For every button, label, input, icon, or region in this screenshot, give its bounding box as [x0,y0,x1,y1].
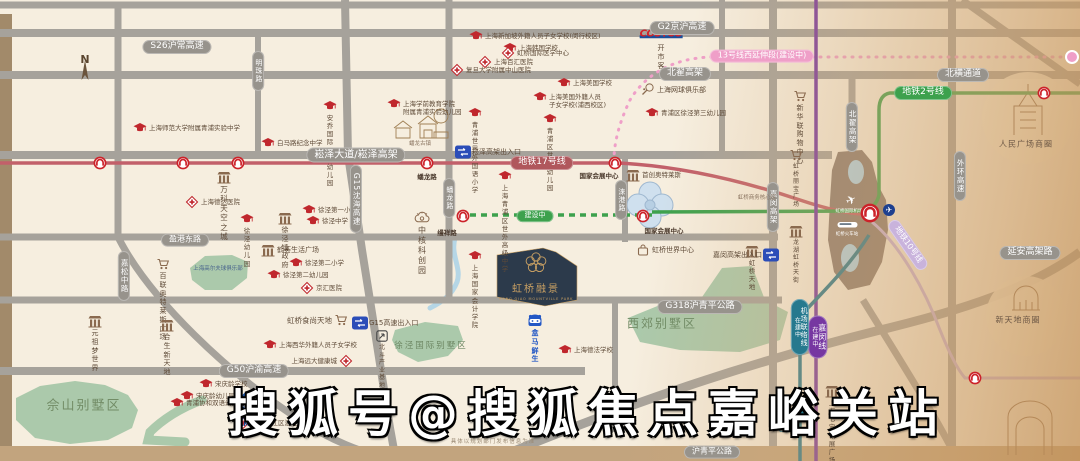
poi-label: 虹桥国际医学中心 [517,49,569,57]
poi-label: 上海国家会计学院 [472,264,479,329]
svg-text:✈: ✈ [886,206,893,215]
metro-station-label: 缦祥路 [437,227,457,237]
poi-label: 上海美国学校 [573,79,612,87]
metro-line-pill: 机场联络线在建中 [791,299,809,355]
metro-station-icon [861,204,880,223]
poi-label: 京汇医院 [316,284,342,292]
plum-blossom-icon [524,251,548,275]
metro-line-pill: 地铁17号线 [510,156,573,170]
poi-label: 白马路纪念中学 [277,139,323,147]
road-pill: G15沈海高速 [350,165,362,233]
metro-station-icon [421,157,434,170]
cart-icon [794,90,807,102]
school-icon [559,345,572,355]
poi-label: 上海新加坡外籍人员子女学校(闵行校区) [485,32,601,40]
poi-label: 上海远大健康城 [292,357,338,365]
line13-terminus-icon [1065,50,1079,64]
school-icon [470,31,483,41]
pill-subtext: 在建中 [793,307,800,347]
school-icon [324,101,337,111]
poi-label: 上海德法学校 [574,346,613,354]
poi-label: 虹桥食尚天地 [287,316,332,325]
school-icon [268,270,281,280]
poi-label: 万科天空之城 [220,185,228,241]
metro-station-icon [457,210,470,223]
metro-station-icon [177,157,190,170]
building-icon [160,319,175,332]
school-icon [303,205,316,215]
road-pill: G2京沪高速 [650,21,715,35]
road-pill: 外环高速 [954,151,966,201]
exit-icon [352,317,368,330]
cart-icon [790,149,803,161]
poi-label: 虹桥世界中心 [652,246,694,255]
school-icon [469,108,482,118]
poi-label: G15高速出入口 [369,319,418,328]
area-label: 虹桥商务核心区 [738,193,777,201]
area-label: 虹桥国际机场 [836,208,863,214]
road-pill: 明珠路 [252,51,264,91]
bag-icon [638,244,649,256]
train-white-icon [837,221,859,229]
poi-label: 徐泾第二幼儿园 [283,271,329,279]
school-icon [200,379,213,389]
svg-text:✈: ✈ [843,193,858,207]
poi-label: 上海百汇医院 [494,58,533,66]
school-icon [646,108,659,118]
location-map: N上海师范大学附属青浦实验中学安乔国际双语幼儿园白马路纪念中学上海新加坡外籍人员… [0,0,1080,461]
area-label: 蟠龙古镇 [409,139,431,147]
road-pill: 涞港路 [615,180,627,220]
poi-label: 虹桥天地 [749,259,756,292]
building-icon [261,244,276,257]
road-pill: 蟠龙路 [443,178,455,218]
metro-line-pill: 13号线西延伸段(建设中) [710,50,814,63]
poi-label: 上海师范大学附属青浦实验中学 [149,124,240,132]
metro-station-label: 蟠龙路 [417,171,437,181]
road-pill: 北横通道 [937,68,989,82]
area-label: 新天地商圈 [996,315,1041,326]
school-icon [388,99,401,109]
cart-icon [157,258,170,270]
road-pill: 嘉闵高架 [767,182,779,232]
hema-icon [527,314,544,328]
project-logo: 虹桥融景 HONG QIAO MOUNTVILLE PARK [492,251,580,307]
beidou-icon [376,330,388,342]
poi-label: 青浦世界外国语小学 [472,121,479,194]
tennis-icon [641,83,655,97]
hospital-icon [186,196,199,209]
plane-circle-icon: ✈ [883,204,896,217]
road-pill: 崧泽大道/崧泽高架 [306,148,405,163]
school-icon [171,398,184,408]
metro-station-label: 国家会展中心 [580,170,619,180]
project-name: 虹桥融景 [492,280,580,295]
area-label: 上海高尔夫球俱乐部 [193,264,243,272]
poi-label: 徐泾中学 [322,217,348,225]
cart-icon [335,314,348,326]
metro-station-icon [637,210,650,223]
poi-label: 复旦大学附属中山医院 [466,66,531,74]
road-pill: 延安高架路 [999,246,1060,260]
poi-label: 上海西华外籍人员子女学校 [279,341,357,349]
poi-label: 青浦区徐泾第三幼儿园 [661,109,726,117]
area-label: 西郊别墅区 [627,315,697,332]
north-compass-icon: N [80,60,90,84]
pill-subtext: 在建中 [810,324,817,351]
hospital-icon [301,282,314,295]
building-icon [278,212,293,225]
hospital-icon [340,355,353,368]
poi-label: 盒马鲜生 [532,329,539,364]
school-icon [469,251,482,261]
poi-label: 徐泾第二小学 [305,259,344,267]
school-icon [307,216,320,226]
school-icon [534,92,547,102]
school-icon [558,78,571,88]
poi-label: 徐泾幼儿园 [244,227,251,268]
metro-station-icon [609,157,622,170]
road-pill: G318沪青平公路 [657,300,742,314]
metro-line-pill: 建设中 [517,210,554,222]
hospital-icon [451,64,464,77]
poi-label: 鹤荟生活广场 [277,246,319,255]
area-label: 人民广场商圈 [999,139,1053,150]
building-icon [789,225,804,238]
metro-line-pill: 地铁2号线 [894,86,952,100]
school-icon [134,123,147,133]
school-icon [264,340,277,350]
building-icon [626,169,641,182]
school-icon [499,171,512,181]
poi-label: 上海美国外籍人员 子女学校(浦西校区) [549,93,606,109]
poi-label: 龙湖虹桥天街 [793,239,799,284]
innovation-icon [414,211,431,225]
school-icon [544,114,557,124]
area-label: 徐泾国际别墅区 [394,339,468,351]
poi-label: 崧泽高架出入口 [472,148,521,157]
road-pill: 盈港东路 [161,234,209,247]
school-icon [241,214,254,224]
plane-white-icon: ✈ [840,193,862,207]
exit-icon [455,146,471,159]
exit-icon [763,249,779,262]
metro-station-icon [1038,87,1051,100]
poi-label: 虹桥丽宝广场 [793,163,799,208]
road-pill: 北翟高架 [846,102,858,152]
road-pill: S26沪常高速 [142,40,211,54]
poi-label: 上海学前教育学院 附属青浦实验幼儿园 [403,100,462,116]
watermark: 搜狐号@搜狐焦点嘉峪关站 [228,374,948,446]
metro-line-pill: 嘉闵线在建中 [808,316,827,359]
area-label: 虹桥火车站 [836,231,859,237]
metro-station-label: 国家会展中心 [645,225,684,235]
metro-station-icon [969,372,982,385]
area-label: 佘山别墅区 [46,395,121,414]
building-icon [88,315,103,328]
metro-line-pill: 地铁10号线 [886,217,930,272]
road-pill: 嘉松中路 [118,251,130,301]
road-pill: 北翟高架 [659,67,711,81]
poi-label: 中核科创园 [418,226,426,276]
road-pill: 沪青平公路 [684,446,740,459]
poi-label: 嘉闵高架出入口 [713,251,762,260]
poi-label: 百联 奥特莱斯广场 [160,272,167,342]
metro-station-icon [94,157,107,170]
poi-label: 元祖梦世界 [92,329,99,373]
school-icon [290,258,303,268]
poi-label: 合生新天地 [164,333,171,377]
poi-label: 上海网球俱乐部 [657,86,706,95]
poi-label: 首创奥特莱斯 [642,171,681,179]
building-icon [217,171,232,184]
project-caption: HONG QIAO MOUNTVILLE PARK [492,297,580,301]
school-icon [262,138,275,148]
metro-station-icon [232,157,245,170]
